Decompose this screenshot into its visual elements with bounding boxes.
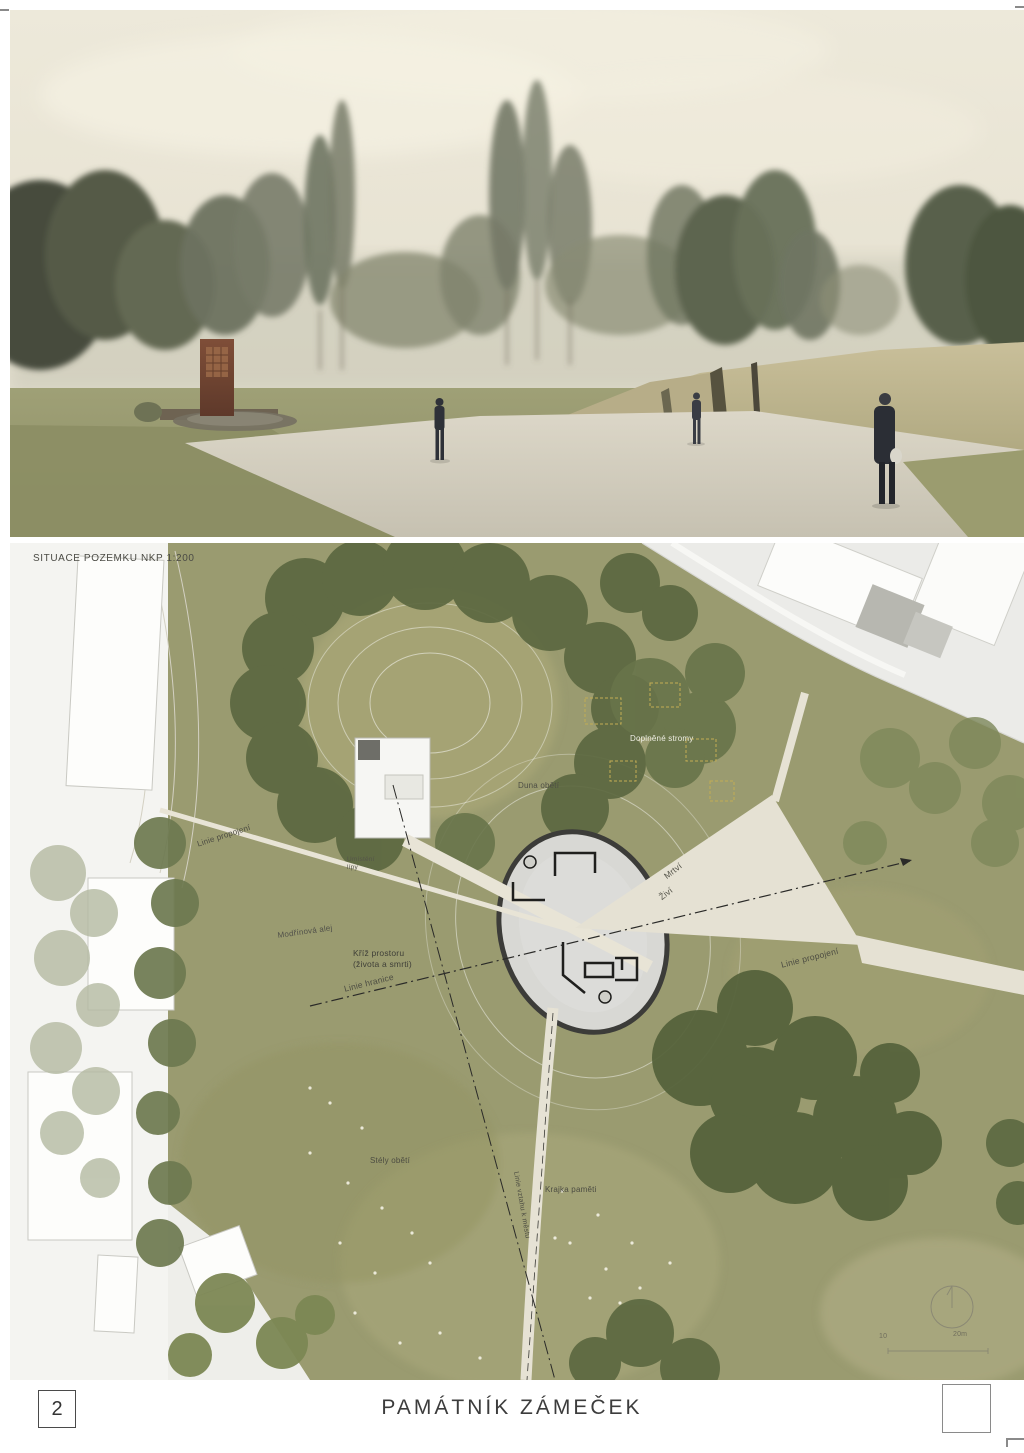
label-kriz-prostoru: Kříž prostoru (života a smrti) — [353, 948, 412, 970]
crop-mark-top-right — [1015, 6, 1024, 8]
label-stely-obeti: Stély obětí — [370, 1156, 410, 1165]
blank-corner-box — [942, 1384, 991, 1433]
render-graphics — [10, 10, 1024, 537]
label-umisteni-lipy: Umístění lípy — [347, 856, 375, 872]
label-doplnene-stromy: Doplněné stromy — [630, 734, 693, 743]
label-krajka-pameti: Krajka paměti — [545, 1185, 597, 1194]
label-duna-obeti: Duna obětí — [518, 781, 559, 790]
scale-tick-20m: 20m — [953, 1331, 967, 1338]
board-title: PAMÁTNÍK ZÁMEČEK — [0, 1396, 1024, 1420]
plan-heading: SITUACE POZEMKU NKP 1:200 — [33, 553, 195, 564]
site-plan-graphics — [10, 543, 1024, 1380]
scale-tick-10: 10 — [879, 1333, 887, 1340]
perspective-render — [10, 10, 1024, 537]
crop-mark-top-left — [0, 9, 9, 11]
crop-mark-bottom-right-h — [1006, 1438, 1024, 1440]
memorial-house — [355, 738, 430, 838]
presentation-board: SITUACE POZEMKU NKP 1:200 Linie propojen… — [0, 0, 1024, 1453]
site-plan-map: SITUACE POZEMKU NKP 1:200 Linie propojen… — [10, 543, 1024, 1380]
